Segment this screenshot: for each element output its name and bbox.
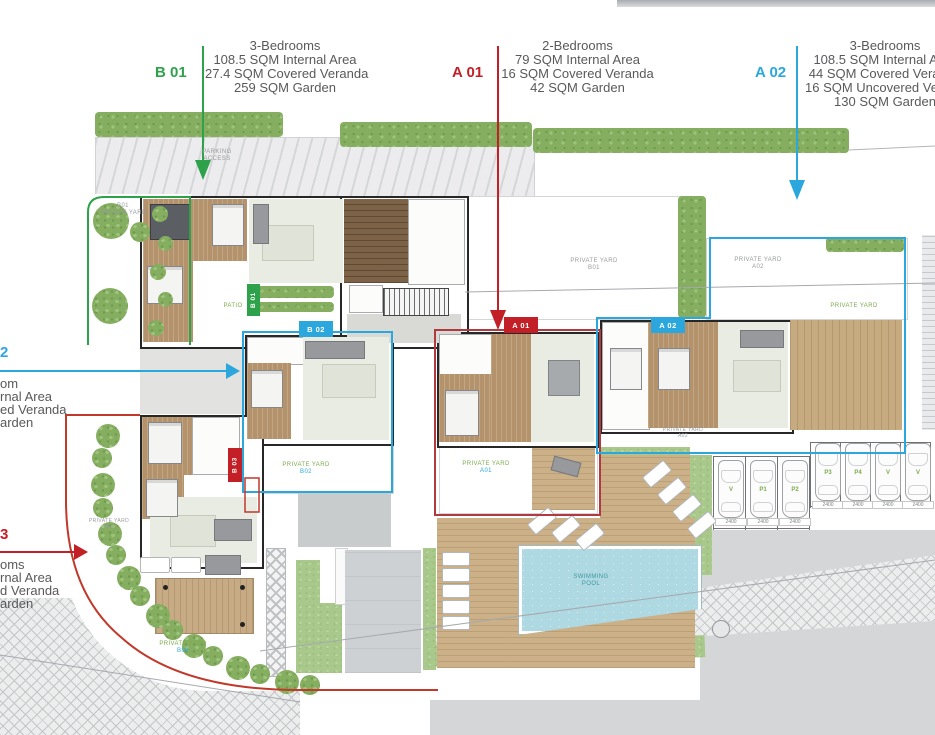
- lounger: [171, 557, 201, 573]
- tree: [148, 320, 164, 336]
- callout-a02-id: A 02: [755, 64, 786, 81]
- deck-a02: [790, 320, 902, 430]
- car-icon: P1: [750, 460, 776, 518]
- label-yard-right-deck: PRIVATE YARD: [818, 303, 890, 310]
- callout-a01-text: 2-Bedrooms 79 SQM Internal Area 16 SQM C…: [495, 39, 660, 95]
- rug: [733, 360, 781, 392]
- rug: [262, 225, 314, 261]
- room: [349, 285, 383, 313]
- parking-space-label: V: [876, 470, 900, 476]
- callout-a01-id: A 01: [452, 64, 483, 81]
- label-line: PRIVATE YARD: [450, 461, 522, 468]
- pergola-post: [240, 622, 245, 627]
- parking-space-label: P1: [751, 487, 775, 493]
- grass-strip: [600, 447, 690, 455]
- walkway-chevron: [266, 548, 286, 677]
- callout-line: 108.5 SQM Internal Area: [205, 53, 365, 67]
- bush: [250, 664, 270, 684]
- tag-b03: B 03: [228, 448, 242, 482]
- label-line: B01: [92, 203, 154, 210]
- label-parking-access: PARKING ACCESS: [172, 149, 262, 163]
- callout-b03-text: oms rnal Area d Veranda arden: [0, 558, 170, 610]
- deck-dark: [344, 199, 408, 283]
- callout-b01-text: 3-Bedrooms 108.5 SQM Internal Area 27.4 …: [205, 39, 365, 95]
- label-line: POOL: [555, 581, 627, 588]
- label-line: PRIVATE YARD: [270, 462, 342, 469]
- label-line: B01: [558, 265, 630, 272]
- tree: [152, 206, 168, 222]
- bush: [92, 448, 112, 468]
- kitchen: [247, 337, 305, 365]
- callout-line: 44 SQM Covered Veranda: [805, 67, 935, 81]
- parking-line: [713, 528, 810, 529]
- lounger-dark: [205, 555, 241, 575]
- parking-dimension: 2400: [715, 518, 747, 526]
- kitchen: [439, 334, 493, 376]
- label-line: PRIVATE YARD: [92, 210, 154, 217]
- label-line: A01: [450, 468, 522, 475]
- hedge: [340, 122, 532, 147]
- parking-space-label: P3: [816, 470, 840, 476]
- grass-strip: [296, 603, 342, 673]
- callout-line: 42 SQM Garden: [495, 81, 660, 95]
- label-yard-b01-left: B01 PRIVATE YARD: [92, 203, 154, 217]
- parking-line: [810, 442, 811, 508]
- label-yard-b01-mid: PRIVATE YARD B01: [558, 258, 630, 272]
- manhole: [712, 620, 730, 638]
- car-icon: V: [718, 460, 744, 518]
- label-line: PARKING: [172, 149, 262, 156]
- car-icon: V: [875, 443, 901, 501]
- lounger: [442, 600, 470, 614]
- rug: [322, 364, 376, 398]
- callout-line: 3-Bedrooms: [205, 39, 365, 53]
- grass-strip: [296, 560, 320, 605]
- label-yard-a01: PRIVATE YARD A01: [450, 461, 522, 475]
- car-icon: P2: [782, 460, 808, 518]
- parking-space-label: V: [906, 470, 930, 476]
- bed: [445, 390, 479, 436]
- car-icon: P3: [815, 443, 841, 501]
- label-line: PRIVATE YARD: [558, 258, 630, 265]
- label-line: A02: [652, 433, 714, 439]
- callout-line: 16 SQM Uncovered Veranda: [805, 81, 935, 95]
- callout-b03-id: 3: [0, 526, 8, 543]
- callout-b01-id: B 01: [155, 64, 187, 81]
- callout-line: arden: [0, 416, 170, 429]
- arrow-a02-icon: [789, 180, 805, 200]
- label-line: A02: [722, 264, 794, 271]
- callout-line: 3-Bedrooms: [805, 39, 935, 53]
- hedge: [533, 128, 849, 153]
- callout-a02-text: 3-Bedrooms 108.5 SQM Internal Area 44 SQ…: [805, 39, 935, 109]
- tree: [158, 292, 173, 307]
- parking-dimension: 2400: [872, 501, 904, 509]
- label-yard-b03-small: PRIVATE YARD B03: [78, 518, 140, 530]
- bush: [300, 675, 320, 695]
- lounger: [442, 568, 470, 582]
- callout-line: 2-Bedrooms: [495, 39, 660, 53]
- car-icon: P4: [845, 443, 871, 501]
- terrace: [298, 492, 391, 547]
- parking-line: [713, 456, 810, 457]
- room: [491, 334, 531, 442]
- label-pool: SWIMMING POOL: [555, 574, 627, 588]
- tag-b02: B 02: [299, 321, 333, 337]
- label-line: PATIO: [286, 305, 326, 312]
- parking-dimension: 2400: [902, 501, 934, 509]
- tree: [150, 264, 166, 280]
- road-area: [430, 700, 935, 735]
- callout-line: 130 SQM Garden: [805, 95, 935, 109]
- bed: [146, 479, 178, 517]
- neighbor-hatch: [922, 235, 935, 435]
- lounger: [442, 552, 470, 566]
- callout-line: 16 SQM Covered Veranda: [495, 67, 660, 81]
- label-line: SWIMMING: [555, 574, 627, 581]
- sofa: [305, 341, 365, 359]
- tag-b01: B 01: [247, 284, 260, 316]
- callout-line: 79 SQM Internal Area: [495, 53, 660, 67]
- staircase: [383, 288, 449, 316]
- hedge: [95, 112, 283, 137]
- room: [408, 199, 465, 285]
- bush: [91, 473, 115, 497]
- rug: [170, 515, 216, 547]
- bush: [163, 620, 183, 640]
- label-yard-b03: PRIVATE YARD B03: [147, 641, 219, 655]
- tree: [130, 222, 150, 242]
- callout-line: 108.5 SQM Internal Area: [805, 53, 935, 67]
- label-line: PRIVATE YARD: [147, 641, 219, 648]
- label-line: PRIVATE YARD: [818, 303, 890, 310]
- label-yard-a02-top: PRIVATE YARD A02: [722, 257, 794, 271]
- parking-space-label: V: [719, 487, 743, 493]
- site-plan: B 01 B 02 A 01 A 02 B 03 PARKING ACCESS …: [0, 0, 935, 735]
- tag-a02: A 02: [651, 317, 685, 333]
- callout-b02-text: om rnal Area ed Veranda arden: [0, 377, 170, 429]
- sofa: [740, 330, 784, 348]
- callout-line: 27.4 SQM Covered Veranda: [205, 67, 365, 81]
- parking-dimension: 2400: [812, 501, 844, 509]
- lounger: [442, 584, 470, 598]
- bush: [226, 656, 250, 680]
- label-line: PRIVATE YARD: [722, 257, 794, 264]
- label-line: B03: [78, 524, 140, 530]
- label-yard-a02-low: PRIVATE YARD A02: [652, 427, 714, 439]
- top-gray-bar: [617, 0, 935, 7]
- lounger: [442, 616, 470, 630]
- bush: [275, 670, 299, 694]
- hedge: [678, 196, 706, 318]
- concrete-ramp: [345, 550, 421, 673]
- bed: [212, 204, 244, 246]
- label-line: B03: [147, 648, 219, 655]
- tree: [158, 236, 173, 251]
- parking-dimension: 2400: [747, 518, 779, 526]
- table: [548, 360, 580, 396]
- parking-space-label: P4: [846, 470, 870, 476]
- label-line: B02: [270, 469, 342, 476]
- deck-a01: [532, 446, 595, 510]
- bush: [93, 498, 113, 518]
- parking-dimension: 2400: [842, 501, 874, 509]
- sofa: [214, 519, 252, 541]
- callout-b02-id: 2: [0, 344, 8, 361]
- hedge: [826, 237, 904, 252]
- parking-dimension: 2400: [779, 518, 811, 526]
- label-yard-b02: PRIVATE YARD B02: [270, 462, 342, 476]
- pergola-post: [240, 585, 245, 590]
- label-patio-right: PATIO: [286, 305, 326, 312]
- callout-line: 259 SQM Garden: [205, 81, 365, 95]
- patio-hedge: [256, 286, 334, 298]
- bed: [251, 370, 283, 408]
- tree: [92, 288, 128, 324]
- label-line: ACCESS: [172, 156, 262, 163]
- callout-line: arden: [0, 597, 170, 610]
- sofa: [253, 204, 269, 244]
- car-icon: V: [905, 443, 931, 501]
- parking-space-label: P2: [783, 487, 807, 493]
- survey-line: [848, 146, 935, 150]
- bed: [610, 348, 642, 390]
- bed: [658, 348, 690, 390]
- tag-a01: A 01: [504, 317, 538, 333]
